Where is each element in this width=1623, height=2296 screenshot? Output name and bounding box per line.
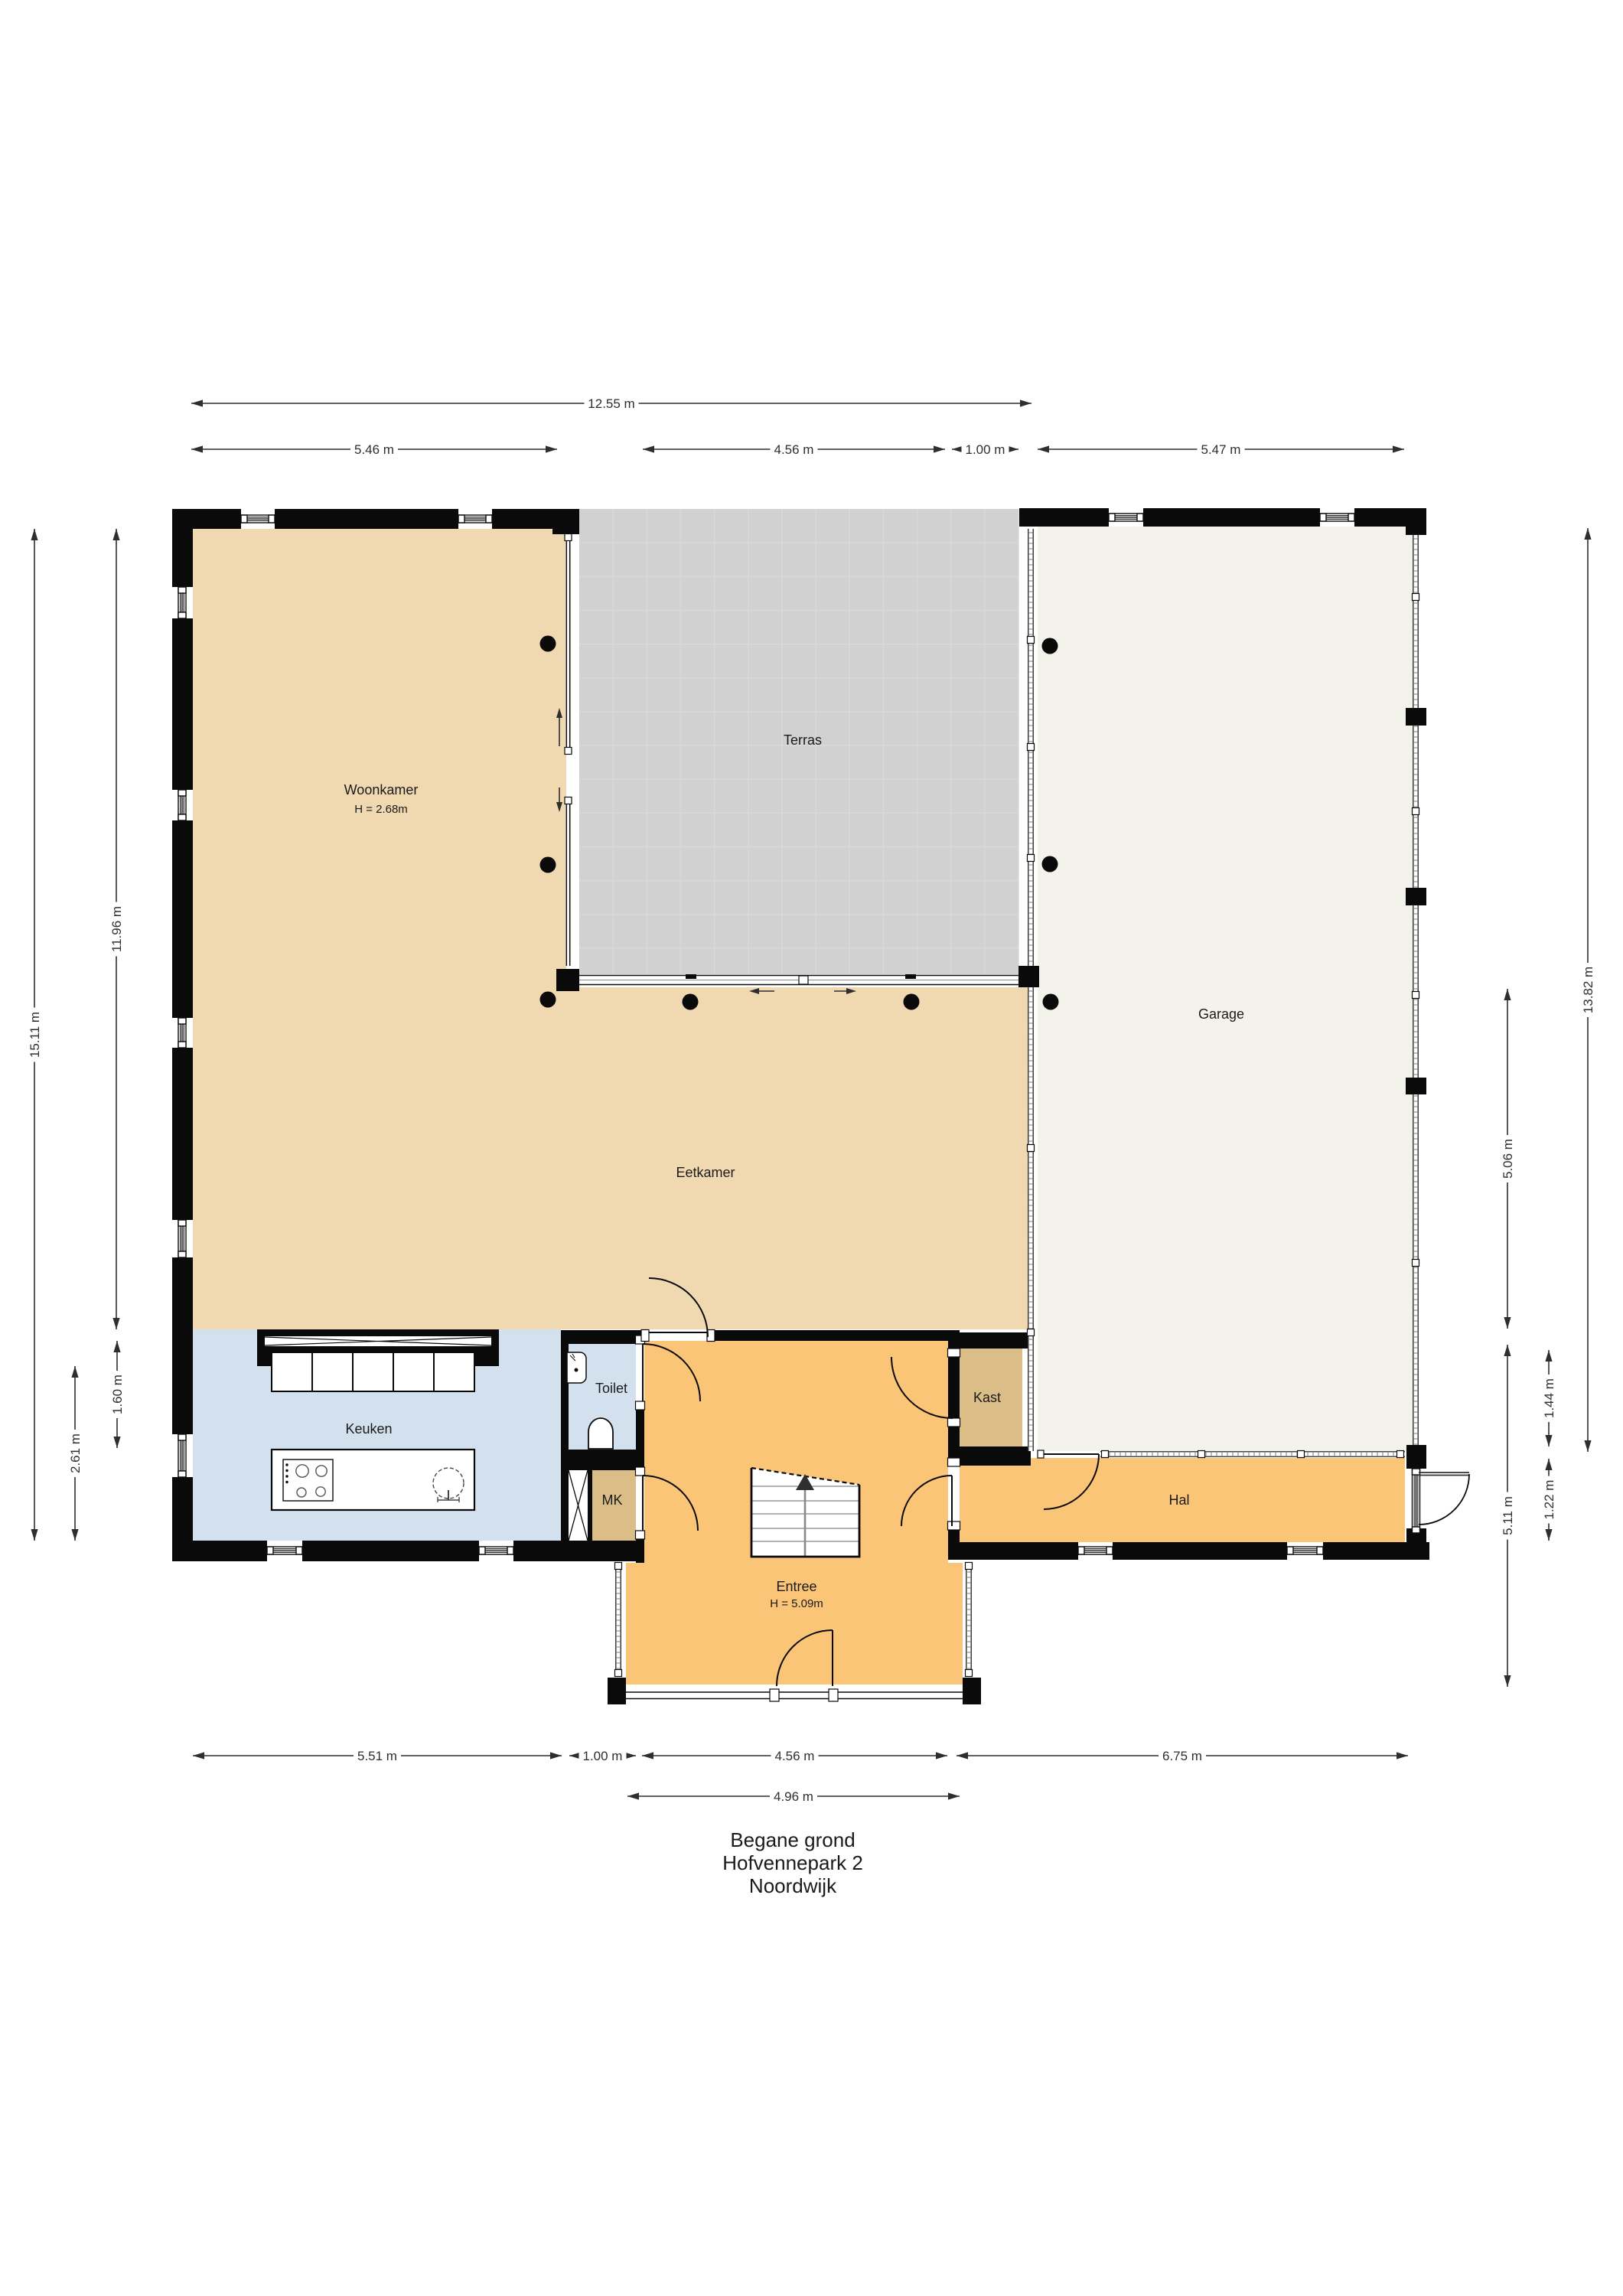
svg-text:MK: MK bbox=[602, 1492, 623, 1508]
svg-text:1.00 m: 1.00 m bbox=[583, 1749, 623, 1763]
svg-text:Woonkamer: Woonkamer bbox=[344, 782, 419, 797]
svg-text:4.56 m: 4.56 m bbox=[775, 1749, 815, 1763]
svg-text:15.11 m: 15.11 m bbox=[28, 1012, 42, 1058]
svg-text:2.61 m: 2.61 m bbox=[68, 1433, 83, 1473]
svg-text:6.75 m: 6.75 m bbox=[1162, 1749, 1202, 1763]
svg-text:Entree: Entree bbox=[776, 1579, 816, 1594]
svg-text:Toilet: Toilet bbox=[595, 1381, 627, 1396]
svg-text:5.47 m: 5.47 m bbox=[1201, 442, 1241, 457]
svg-text:12.55 m: 12.55 m bbox=[588, 396, 634, 411]
svg-text:Garage: Garage bbox=[1198, 1006, 1244, 1022]
svg-text:Hal: Hal bbox=[1168, 1492, 1189, 1508]
svg-text:Terras: Terras bbox=[784, 732, 822, 748]
svg-text:1.22 m: 1.22 m bbox=[1542, 1480, 1556, 1520]
svg-text:5.46 m: 5.46 m bbox=[354, 442, 394, 457]
svg-text:4.56 m: 4.56 m bbox=[774, 442, 814, 457]
svg-text:11.96 m: 11.96 m bbox=[109, 906, 124, 952]
svg-text:Hofvennepark 2: Hofvennepark 2 bbox=[722, 1851, 863, 1874]
svg-text:Noordwijk: Noordwijk bbox=[749, 1874, 837, 1897]
svg-text:Keuken: Keuken bbox=[345, 1421, 392, 1437]
svg-text:H = 5.09m: H = 5.09m bbox=[770, 1597, 823, 1610]
svg-text:H = 2.68m: H = 2.68m bbox=[354, 803, 408, 816]
svg-text:1.00 m: 1.00 m bbox=[966, 442, 1005, 457]
svg-text:1.44 m: 1.44 m bbox=[1542, 1378, 1556, 1418]
svg-text:5.51 m: 5.51 m bbox=[357, 1749, 397, 1763]
svg-text:13.82 m: 13.82 m bbox=[1581, 967, 1595, 1013]
svg-text:Kast: Kast bbox=[973, 1390, 1001, 1405]
svg-text:Begane grond: Begane grond bbox=[730, 1828, 855, 1851]
svg-text:5.06 m: 5.06 m bbox=[1501, 1139, 1515, 1179]
svg-text:1.60 m: 1.60 m bbox=[110, 1375, 125, 1414]
svg-text:5.11 m: 5.11 m bbox=[1501, 1496, 1515, 1535]
svg-text:4.96 m: 4.96 m bbox=[774, 1789, 813, 1804]
svg-text:Eetkamer: Eetkamer bbox=[676, 1165, 735, 1180]
